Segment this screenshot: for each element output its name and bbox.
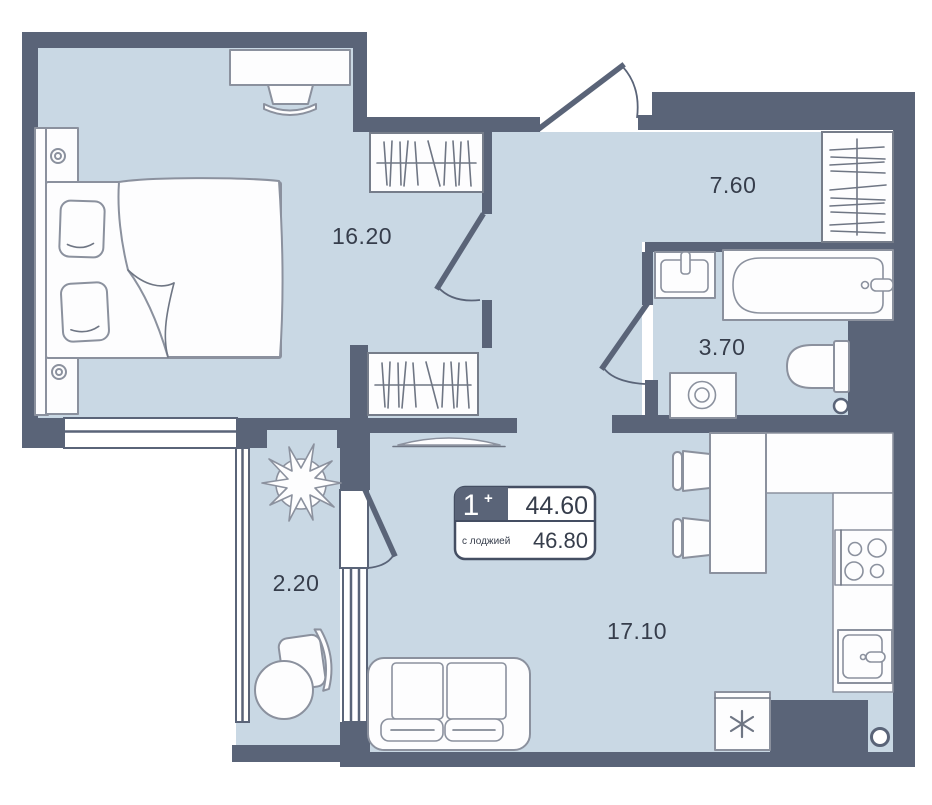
sofa	[368, 658, 530, 750]
hallway-wardrobe	[822, 132, 893, 242]
stove	[835, 530, 893, 585]
room-label-loggia: 2.20	[273, 570, 320, 596]
room-label-bedroom: 16.20	[332, 223, 392, 249]
floor-plan-page: 16.20 7.60 3.70 2.20 17.10 1 + 44.60 с л…	[0, 0, 932, 800]
room-label-hallway: 7.60	[710, 172, 757, 198]
entrance-door	[540, 66, 638, 128]
toilet	[787, 341, 849, 392]
pipe-icon	[872, 729, 889, 746]
badge-room-count: 1	[463, 489, 480, 522]
bathtub	[723, 250, 893, 320]
wardrobe-top	[370, 133, 483, 192]
badge-loggia-area: 46.80	[533, 528, 588, 553]
desk-chair	[264, 85, 316, 115]
room-label-bathroom: 3.70	[699, 334, 746, 360]
drain-icon	[834, 399, 848, 413]
kitchen-sink	[838, 630, 892, 683]
floor-plan-canvas: 16.20 7.60 3.70 2.20 17.10 1 + 44.60 с л…	[0, 0, 932, 800]
burner-icon	[868, 539, 886, 557]
pillow	[61, 282, 110, 342]
bedroom-window	[64, 418, 237, 448]
dining-chair	[673, 451, 710, 491]
loggia-living-window	[343, 568, 367, 722]
burner-icon	[871, 565, 884, 578]
burner-icon	[849, 543, 862, 556]
washing-machine	[670, 373, 736, 418]
dining-chair	[673, 518, 710, 558]
sink	[655, 252, 715, 298]
faucet-icon	[862, 282, 869, 289]
wardrobe-bottom	[368, 353, 478, 415]
loggia-table	[255, 661, 313, 719]
area-badge: 1 + 44.60 с лоджией 46.80	[455, 487, 595, 559]
badge-total-area: 44.60	[525, 492, 588, 520]
badge-loggia-label: с лоджией	[462, 536, 510, 547]
room-label-kitchen-living: 17.10	[607, 618, 667, 644]
desk	[230, 50, 350, 85]
nightstand-bottom	[46, 352, 78, 414]
badge-plus: +	[484, 490, 493, 507]
nightstand-top	[46, 128, 78, 188]
counter-top	[766, 433, 893, 493]
double-bed	[46, 178, 283, 358]
pillow	[59, 200, 105, 258]
fridge	[715, 692, 770, 750]
burner-icon	[845, 562, 863, 580]
dining-table	[710, 433, 766, 573]
loggia-glazing	[236, 448, 249, 722]
